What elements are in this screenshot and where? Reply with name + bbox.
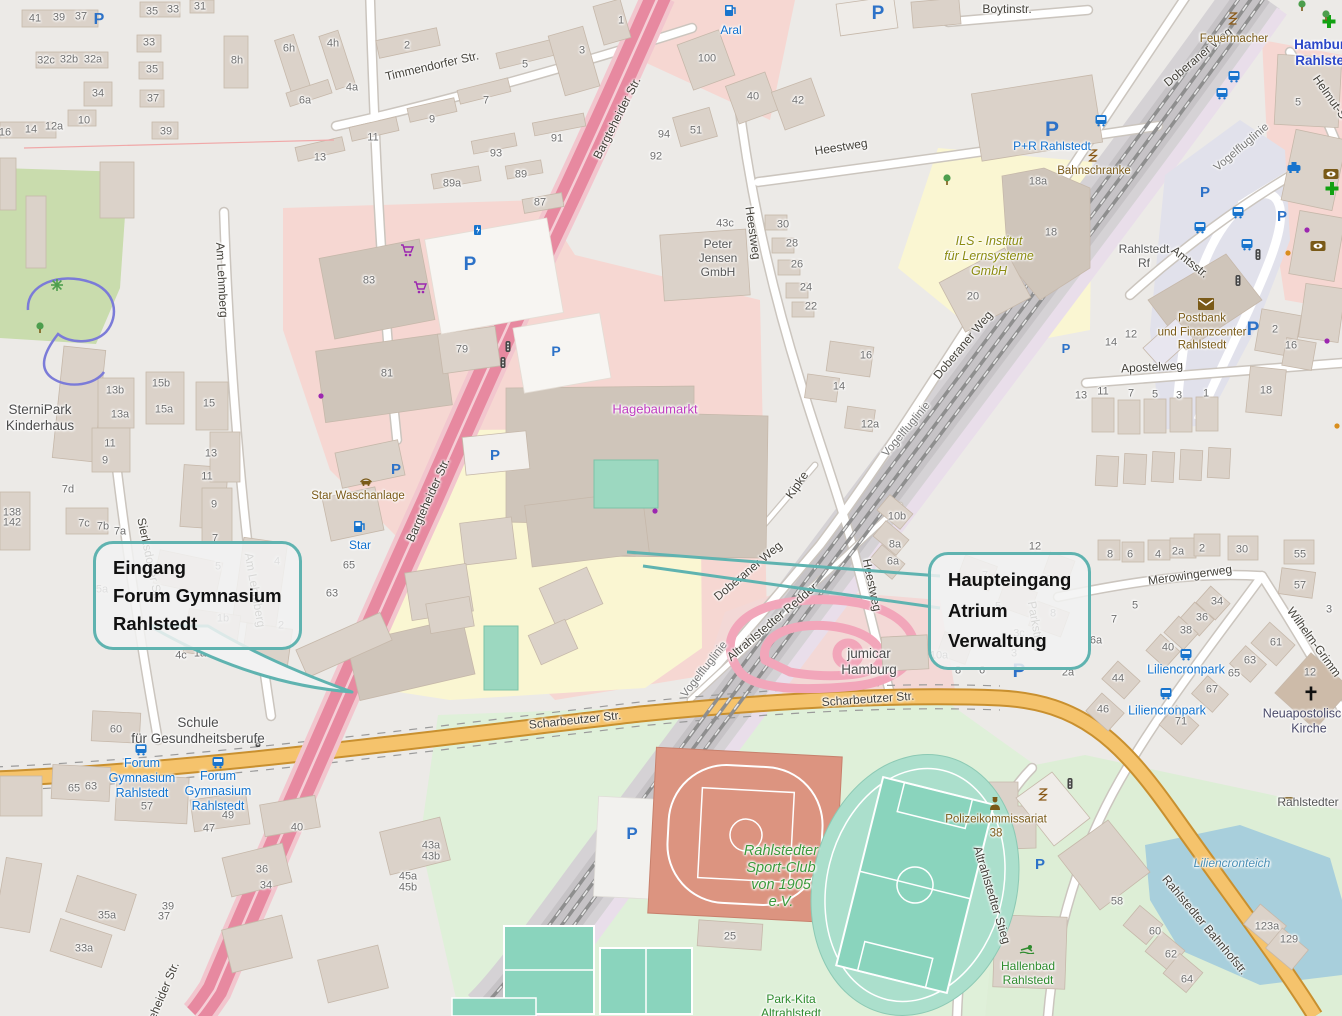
callout-line: Rahlstedt: [113, 613, 197, 634]
callout-eingang-forum: Eingang Forum Gymnasium Rahlstedt: [93, 541, 302, 650]
callout-haupteingang-atrium: Haupteingang Atrium Verwaltung: [928, 552, 1091, 670]
callout-line: Verwaltung: [948, 630, 1047, 651]
map-base-graphics: [0, 0, 1342, 1016]
callout-line: Forum Gymnasium: [113, 585, 282, 606]
callout-line: Eingang: [113, 557, 186, 578]
callout-line: Atrium: [948, 600, 1008, 621]
map-canvas[interactable]: PPPPPPPPPPPPPP Bargteheider Str.Bargtehe…: [0, 0, 1342, 1016]
callout-line: Haupteingang: [948, 569, 1071, 590]
